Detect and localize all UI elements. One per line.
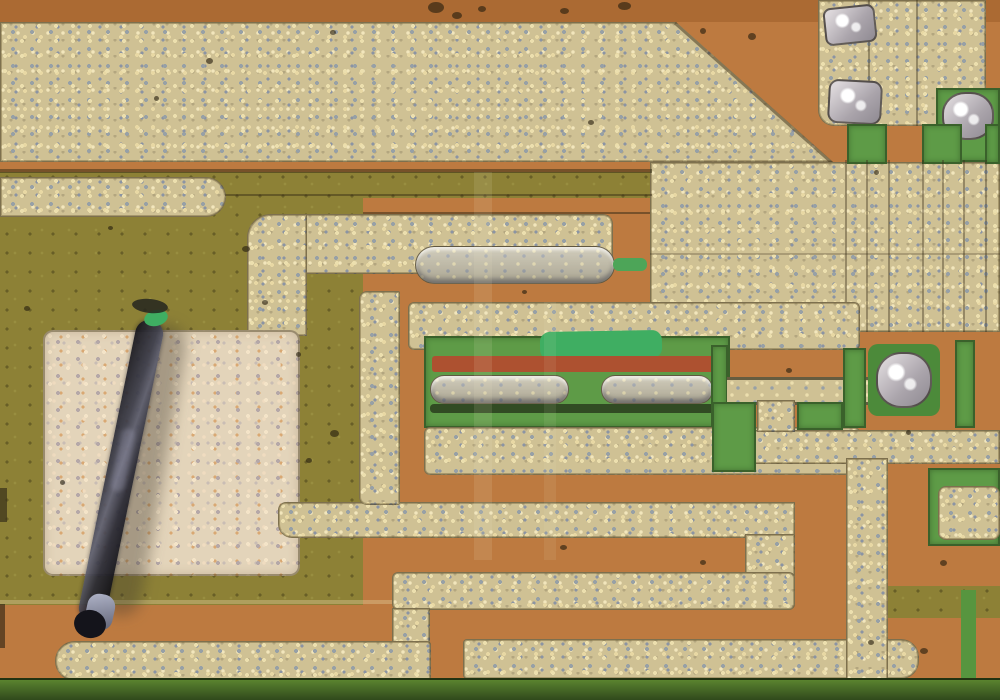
- buried-line-6: [963, 160, 965, 332]
- buried-line-7: [985, 160, 987, 332]
- dust-dot: [868, 640, 874, 645]
- dust-dot: [242, 246, 250, 252]
- dark-edge-mark-2: [0, 488, 7, 522]
- metal-leg-right: [846, 458, 888, 684]
- green-contact-3: [985, 124, 1000, 164]
- dust-dot: [940, 560, 947, 566]
- buried-line-h: [650, 253, 1000, 255]
- serpentine-band-2: [278, 502, 795, 538]
- dust-dot: [700, 28, 706, 34]
- green-sliver: [613, 258, 647, 271]
- dust-dot: [748, 33, 756, 40]
- thin-tan-hairline: [0, 600, 392, 604]
- serpentine-band-3: [392, 572, 795, 610]
- buried-line-3: [888, 160, 890, 332]
- buried-line-4: [922, 160, 924, 332]
- dust-dot: [588, 120, 594, 125]
- poly-overlay-band-1: [474, 172, 492, 560]
- dust-dot: [906, 430, 911, 435]
- pad-hairline-2: [916, 0, 918, 126]
- dust-dot: [560, 8, 569, 14]
- serpentine-top-finger: [415, 246, 615, 284]
- probe-mark-1: [822, 3, 878, 46]
- poly-overlay-band-2: [544, 302, 556, 560]
- dust-dot: [296, 352, 301, 357]
- dust-dot: [428, 2, 444, 13]
- olive-strip-right: [888, 586, 1000, 618]
- green-square-b: [797, 402, 843, 430]
- dust-dot: [786, 368, 792, 373]
- green-square-a: [712, 402, 756, 472]
- dust-dot: [330, 30, 336, 35]
- dust-dot: [154, 96, 159, 101]
- ic-die-photograph: [0, 0, 1000, 700]
- dust-dot: [262, 300, 268, 305]
- buried-line-2: [866, 160, 868, 332]
- dark-edge-mark-1: [0, 604, 5, 648]
- transistor-frame-left: [359, 291, 400, 505]
- green-contact-2: [922, 124, 962, 164]
- metal-bar-top-left: [0, 177, 226, 217]
- contact-pad-right: [938, 486, 1000, 540]
- plane-boundary-line: [0, 169, 652, 173]
- green-column-2: [955, 340, 975, 428]
- dust-dot: [24, 306, 30, 311]
- dust-dot: [206, 58, 213, 64]
- strip-hairline-1: [225, 194, 652, 196]
- dust-dot: [522, 290, 527, 294]
- dust-dot: [560, 545, 567, 550]
- metal-bar-bottom-left: [55, 641, 431, 681]
- dust-dot: [920, 648, 928, 654]
- dust-dot: [330, 430, 339, 437]
- green-column-1: [843, 348, 866, 428]
- dust-dot: [452, 12, 462, 19]
- dust-dot: [700, 560, 706, 565]
- probe-blob-center: [876, 352, 932, 408]
- buried-line-5: [942, 160, 944, 332]
- trace-stub: [757, 400, 795, 432]
- emitter-finger-b: [601, 375, 713, 404]
- dust-dot: [60, 480, 65, 485]
- green-line-right: [961, 590, 976, 682]
- dust-dot: [874, 170, 879, 175]
- bottom-diffusion-strip: [0, 678, 1000, 700]
- dust-dot: [618, 2, 631, 10]
- dust-dot: [478, 6, 486, 12]
- serpentine-elbow: [745, 534, 795, 576]
- green-contact-1: [847, 124, 887, 164]
- serpentine-left-leg: [247, 214, 307, 336]
- probe-mark-2: [827, 79, 883, 126]
- dust-dot: [306, 458, 312, 463]
- dust-dot: [108, 226, 113, 230]
